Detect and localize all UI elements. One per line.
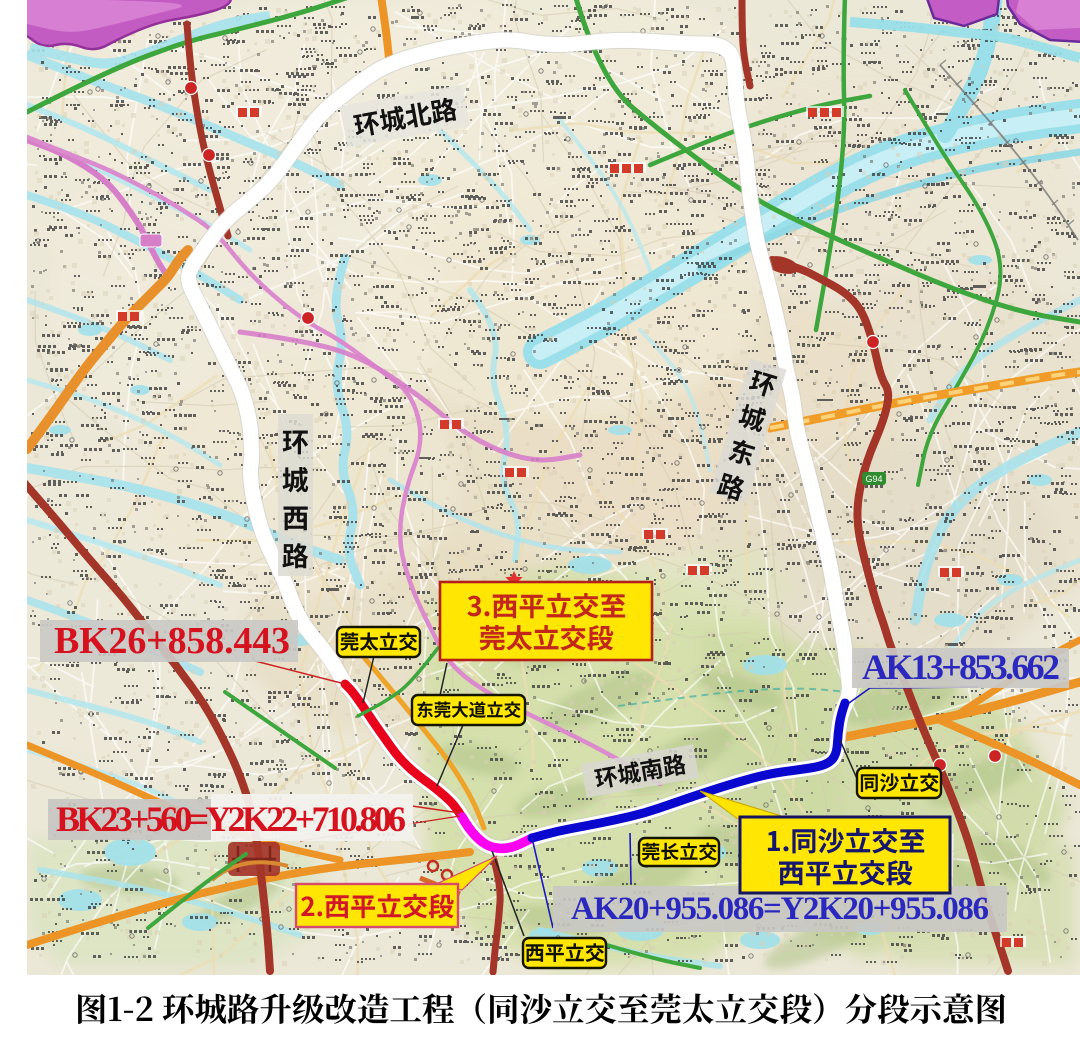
svg-text:BK23+560=Y2K22+710.806: BK23+560=Y2K22+710.806 (56, 799, 406, 839)
svg-text:G94: G94 (865, 474, 882, 484)
svg-text:BK26+858.443: BK26+858.443 (54, 620, 290, 662)
svg-text:AK20+955.086=Y2K20+955.086: AK20+955.086=Y2K20+955.086 (571, 891, 989, 927)
svg-text:AK13+853.662: AK13+853.662 (862, 647, 1060, 687)
